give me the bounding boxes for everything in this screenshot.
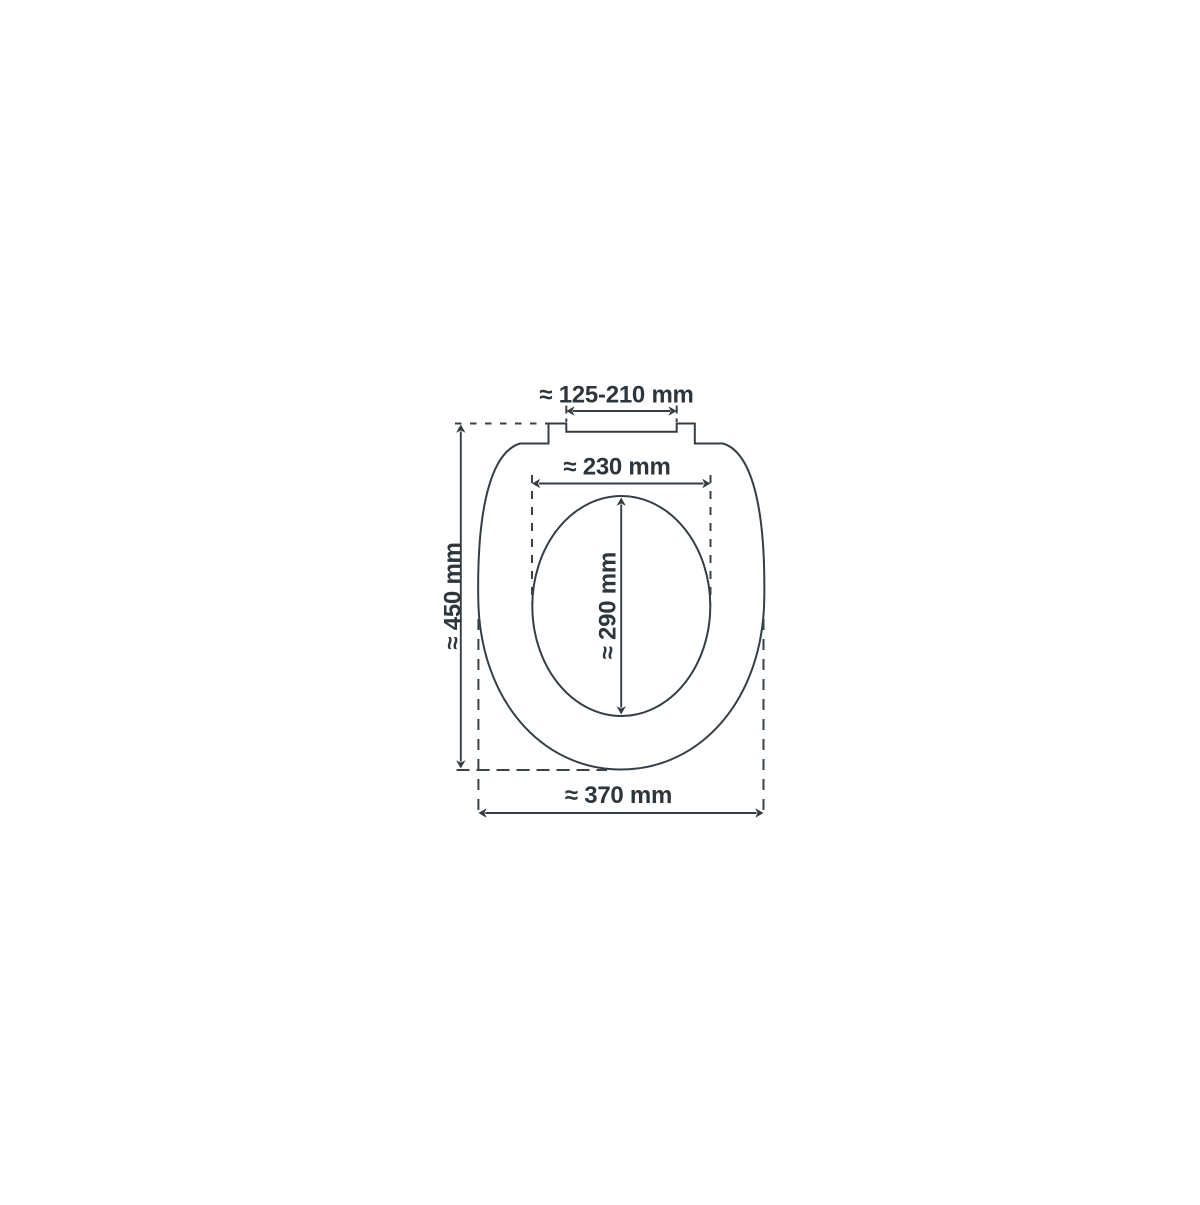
svg-text:≈ 370 mm: ≈ 370 mm <box>565 782 672 809</box>
svg-text:≈ 290 mm: ≈ 290 mm <box>595 552 622 659</box>
svg-text:≈ 450 mm: ≈ 450 mm <box>440 542 467 649</box>
svg-text:≈ 230 mm: ≈ 230 mm <box>563 454 670 481</box>
svg-text:≈ 125-210 mm: ≈ 125-210 mm <box>539 382 693 409</box>
